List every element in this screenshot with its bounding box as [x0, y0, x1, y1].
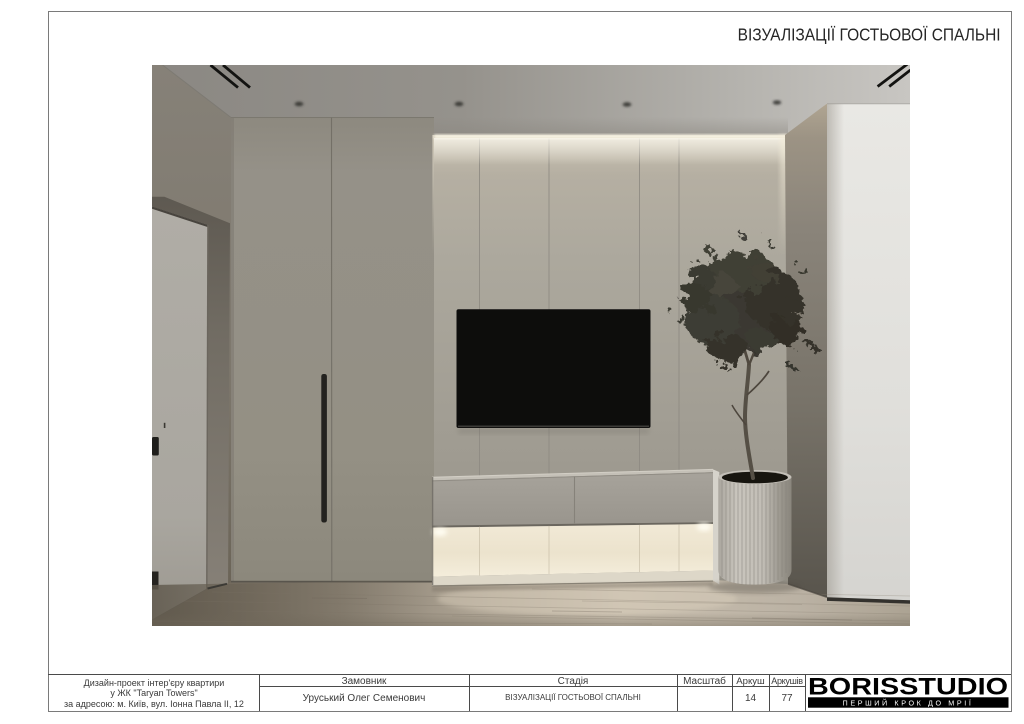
- svg-text:ВІЗУАЛІЗАЦІЇ ГОСТЬОВОЇ СПАЛЬНІ: ВІЗУАЛІЗАЦІЇ ГОСТЬОВОЇ СПАЛЬНІ: [738, 25, 1001, 45]
- svg-text:ПЕРШИЙ КРОК ДО МРІЇ: ПЕРШИЙ КРОК ДО МРІЇ: [843, 699, 974, 708]
- svg-text:BORISSTUDIO: BORISSTUDIO: [808, 674, 1008, 701]
